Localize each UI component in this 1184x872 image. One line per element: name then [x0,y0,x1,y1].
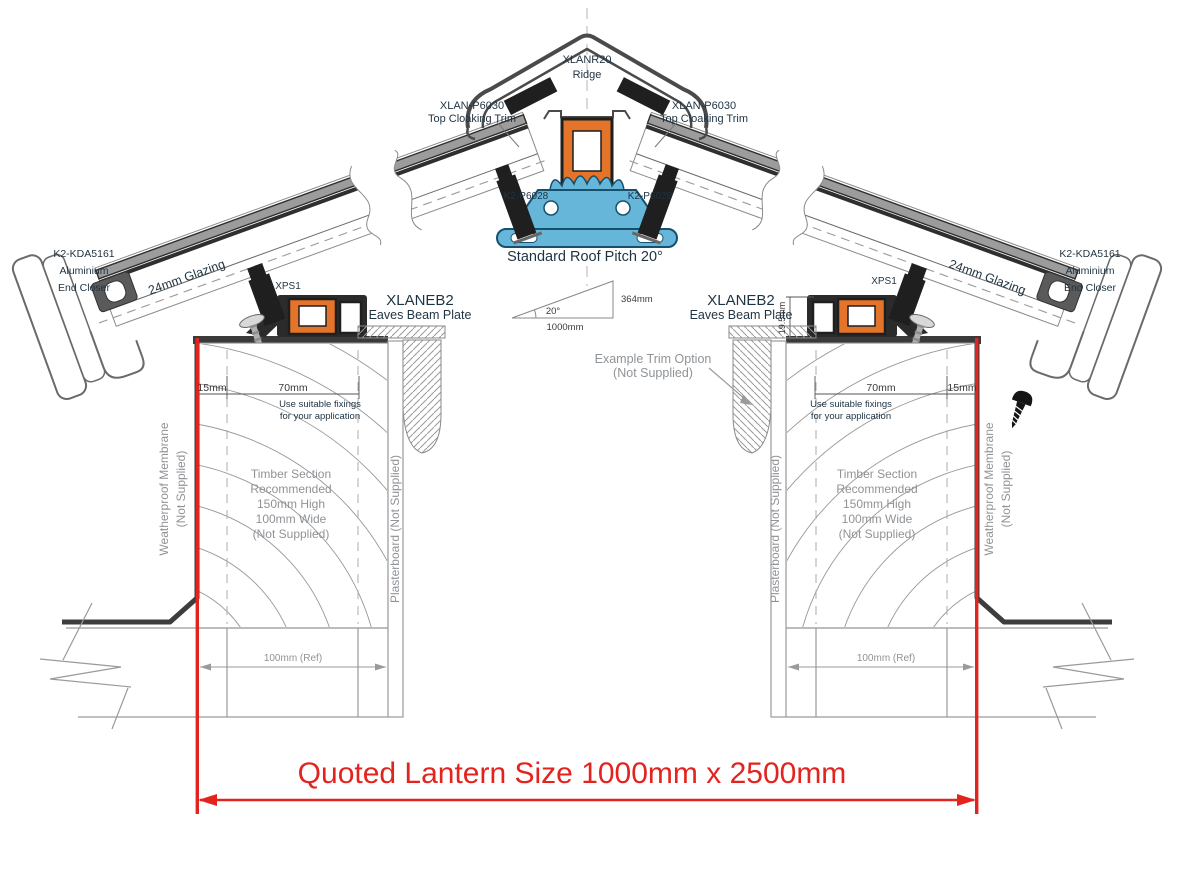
dim-70mm-left: 70mm [278,382,307,394]
end-closer-l2-left: Aluminium [59,265,108,277]
quoted-size-label: Quoted Lantern Size 1000mm x 2500mm [298,757,847,790]
eaves-code-right: XLANEB2 [707,292,775,309]
fixings-note-l1-left: Use suitable fixings [279,399,361,410]
svg-text:100mm Wide: 100mm Wide [256,512,327,526]
ridge-name-label: Ridge [573,69,602,81]
membrane-note-right: Weatherproof Membrane [982,422,996,556]
end-closer-l3-left: End Closer [58,282,110,294]
cross-section-canvas: XLANR20 Ridge XLAN-P6030 Top Cloaking Tr… [0,0,1184,872]
svg-text:(Not Supplied): (Not Supplied) [174,451,188,528]
pitch-angle-label: 20° [546,306,561,317]
dim-upstand: 19.5mm [777,302,787,335]
svg-text:Recommended: Recommended [250,482,331,496]
svg-text:150mm High: 150mm High [843,497,911,511]
cloaking-name-left: Top Cloaking Trim [428,113,516,125]
eaves-code-left: XLANEB2 [386,292,454,309]
dim-15mm-left: 15mm [197,382,226,394]
timber-note-left: Timber Section [251,467,331,481]
loose-screw-icon [1003,388,1035,431]
wall-ref-label-left: 100mm (Ref) [264,653,322,664]
clamp-code-right: K2-P6028 [628,191,673,202]
end-closer-code-left: K2-KDA5161 [53,248,114,260]
timber-note-right: Timber Section [837,467,917,481]
fixings-note-l1-right: Use suitable fixings [810,399,892,410]
clamp-code-left: K2-P6028 [504,191,549,202]
svg-text:150mm High: 150mm High [257,497,325,511]
xps1-label-left: XPS1 [275,281,301,292]
end-closer-code-right: K2-KDA5161 [1059,248,1120,260]
trim-option-note-l2: (Not Supplied) [613,366,693,380]
plasterboard-note-left: Plasterboard (Not Supplied) [388,455,402,603]
xps1-label-right: XPS1 [871,276,897,287]
cloaking-code-left: XLAN-P6030 [440,100,504,112]
fixings-note-l2-left: for your application [280,411,360,422]
dim-15mm-right: 15mm [947,382,976,394]
fixings-note-l2-right: for your application [811,411,891,422]
pitch-triangle [512,281,613,318]
svg-text:100mm Wide: 100mm Wide [842,512,913,526]
membrane-note-left: Weatherproof Membrane [157,422,171,556]
cloaking-code-right: XLAN-P6030 [672,100,736,112]
end-closer-l3-right: End Closer [1064,282,1116,294]
quoted-size-dimension [198,794,976,806]
lantern-section-drawing: XLANR20 Ridge XLAN-P6030 Top Cloaking Tr… [0,0,1184,872]
wall-ref-label-right: 100mm (Ref) [857,653,915,664]
pitch-title: Standard Roof Pitch 20° [507,249,663,265]
quoted-size-extension-line [196,338,199,814]
svg-text:(Not Supplied): (Not Supplied) [253,527,330,541]
pitch-rise-label: 364mm [621,294,653,305]
end-closer-l2-right: Aluminium [1065,265,1114,277]
svg-text:(Not Supplied): (Not Supplied) [999,451,1013,528]
ridge-code-label: XLANR20 [563,54,612,66]
trim-option-note-l1: Example Trim Option [595,352,712,366]
svg-text:Recommended: Recommended [836,482,917,496]
eaves-name-left: Eaves Beam Plate [369,308,472,322]
svg-text:(Not Supplied): (Not Supplied) [839,527,916,541]
pitch-base-label: 1000mm [547,322,584,333]
dim-70mm-right: 70mm [866,382,895,394]
cloaking-name-right: Top Cloaking Trim [660,113,748,125]
plasterboard-note-right: Plasterboard (Not Supplied) [768,455,782,603]
